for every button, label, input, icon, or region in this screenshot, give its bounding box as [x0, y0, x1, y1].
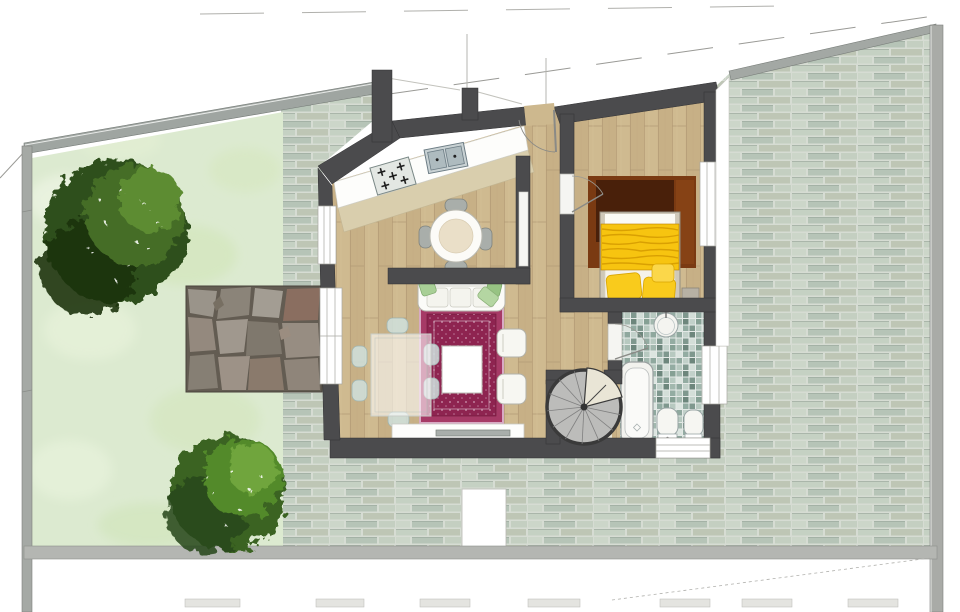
tv-icon [436, 430, 510, 436]
west-boundary-wall [22, 146, 32, 612]
dining-chair [352, 380, 367, 401]
toilet-icon [657, 408, 678, 442]
wall-bedroom-south [560, 298, 720, 312]
gate-opening [462, 489, 506, 547]
spiral-staircase [547, 368, 622, 444]
partition-dining-south [388, 268, 530, 284]
bedroom [588, 176, 699, 308]
south-retaining-wall [24, 546, 937, 559]
floor-plan-canvas [0, 0, 960, 612]
glass-dining-table [371, 334, 431, 416]
stone-patio [186, 286, 322, 392]
floor-plan-svg [0, 0, 960, 612]
window-bathroom-east [702, 346, 727, 404]
stair-center-post [581, 404, 588, 411]
dining-pocket-door [519, 192, 528, 266]
small-yellow-cushion [652, 264, 674, 282]
bathtub-icon [621, 362, 653, 444]
wall-stub-center [462, 88, 478, 120]
window-west-large [320, 288, 342, 384]
tv-sideboard [392, 424, 524, 440]
armchair [497, 374, 526, 404]
armchair [497, 329, 526, 357]
dining-chair [387, 318, 408, 333]
east-walkway-strip [716, 77, 729, 346]
flagstones [188, 287, 320, 390]
double-bed [600, 212, 680, 308]
dining-chair [352, 346, 367, 367]
window-west-small [318, 206, 336, 264]
coffee-table [442, 346, 482, 393]
window-bathroom-south [656, 438, 710, 458]
yellow-pillow [606, 272, 643, 301]
bidet-icon [684, 410, 703, 442]
wall-stub-west [372, 70, 392, 142]
east-boundary-wall [930, 25, 943, 612]
